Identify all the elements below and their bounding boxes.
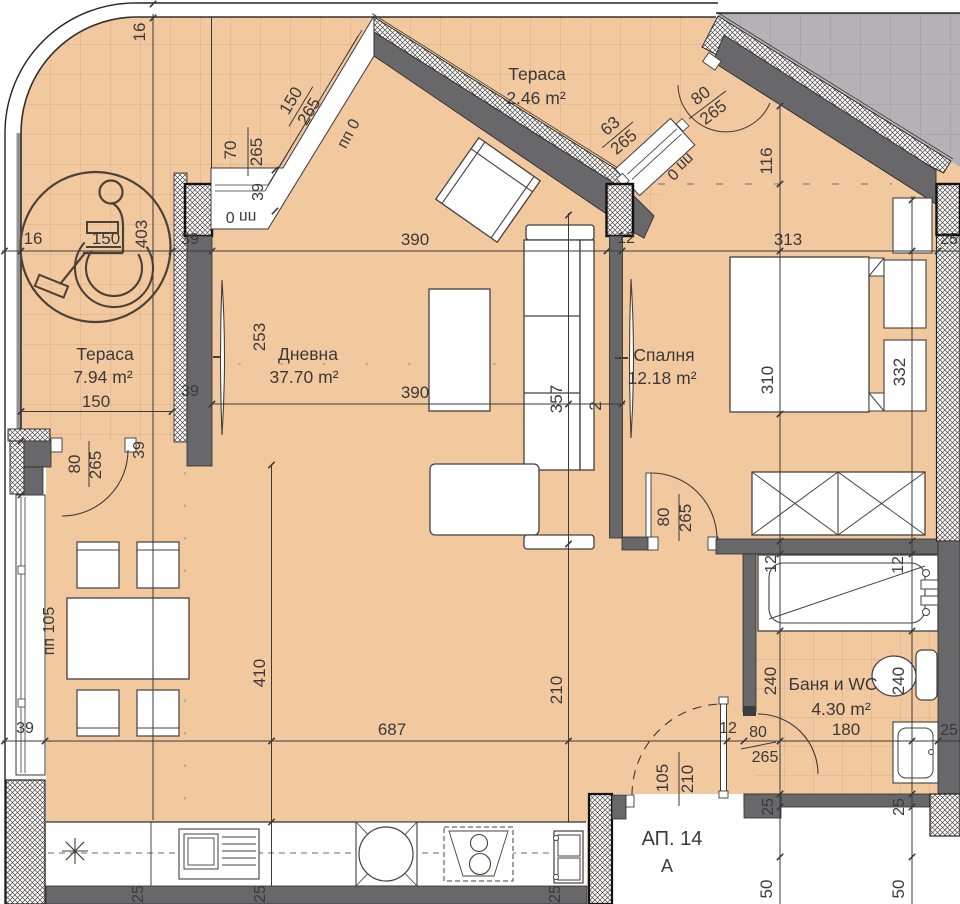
svg-text:70: 70 xyxy=(221,141,240,160)
svg-text:39: 39 xyxy=(250,183,267,201)
svg-text:12: 12 xyxy=(719,720,737,737)
svg-text:265: 265 xyxy=(247,138,266,166)
svg-text:2: 2 xyxy=(586,401,605,410)
svg-text:16: 16 xyxy=(130,23,149,42)
svg-text:50: 50 xyxy=(757,880,776,899)
svg-text:150: 150 xyxy=(82,392,110,411)
svg-text:210: 210 xyxy=(547,676,566,704)
svg-text:12: 12 xyxy=(763,555,780,573)
svg-text:39: 39 xyxy=(181,231,199,248)
svg-text:310: 310 xyxy=(758,366,777,394)
svg-text:80: 80 xyxy=(654,508,673,527)
svg-text:12: 12 xyxy=(617,230,635,247)
svg-text:357: 357 xyxy=(547,385,566,413)
svg-text:7.94 m²: 7.94 m² xyxy=(73,367,132,387)
svg-text:39: 39 xyxy=(16,720,34,737)
svg-text:25: 25 xyxy=(547,885,564,903)
svg-text:403: 403 xyxy=(132,220,151,248)
svg-text:А: А xyxy=(661,856,673,876)
svg-text:Тераса: Тераса xyxy=(508,64,566,84)
svg-text:25: 25 xyxy=(760,798,777,816)
svg-text:Спалня: Спалня xyxy=(633,345,694,365)
svg-text:390: 390 xyxy=(401,383,429,402)
svg-text:2.46 m²: 2.46 m² xyxy=(506,88,565,108)
svg-text:25: 25 xyxy=(940,231,958,248)
svg-text:пп 0: пп 0 xyxy=(226,208,257,225)
svg-text:37.70 m²: 37.70 m² xyxy=(269,367,338,387)
svg-text:16: 16 xyxy=(24,229,43,248)
svg-text:12: 12 xyxy=(890,556,907,574)
svg-text:Тераса: Тераса xyxy=(76,344,134,364)
svg-text:150: 150 xyxy=(92,229,120,248)
svg-text:265: 265 xyxy=(752,749,779,766)
svg-text:390: 390 xyxy=(401,230,429,249)
svg-text:180: 180 xyxy=(832,720,860,739)
svg-text:80: 80 xyxy=(749,724,767,741)
svg-text:313: 313 xyxy=(774,230,802,249)
svg-text:332: 332 xyxy=(890,358,909,386)
svg-text:25: 25 xyxy=(130,885,147,903)
svg-text:80: 80 xyxy=(65,455,84,474)
svg-text:25: 25 xyxy=(940,722,958,739)
svg-text:116: 116 xyxy=(757,147,776,174)
svg-text:Баня и WC: Баня и WC xyxy=(788,674,877,694)
svg-text:4.30 m²: 4.30 m² xyxy=(811,699,870,719)
svg-text:АП. 14: АП. 14 xyxy=(642,828,703,850)
svg-text:39: 39 xyxy=(181,383,199,400)
svg-text:50: 50 xyxy=(889,880,908,899)
svg-text:пп 105: пп 105 xyxy=(41,607,58,656)
svg-text:410: 410 xyxy=(250,659,269,687)
svg-text:240: 240 xyxy=(889,667,908,695)
svg-text:39: 39 xyxy=(131,441,148,459)
svg-text:12.18 m²: 12.18 m² xyxy=(627,368,696,388)
svg-text:253: 253 xyxy=(250,323,269,351)
svg-text:240: 240 xyxy=(761,667,780,695)
svg-text:687: 687 xyxy=(378,720,406,739)
svg-text:210: 210 xyxy=(678,765,697,793)
svg-text:Дневна: Дневна xyxy=(278,344,338,364)
svg-text:25: 25 xyxy=(252,885,269,903)
svg-text:105: 105 xyxy=(653,764,672,792)
svg-text:25: 25 xyxy=(891,798,908,816)
